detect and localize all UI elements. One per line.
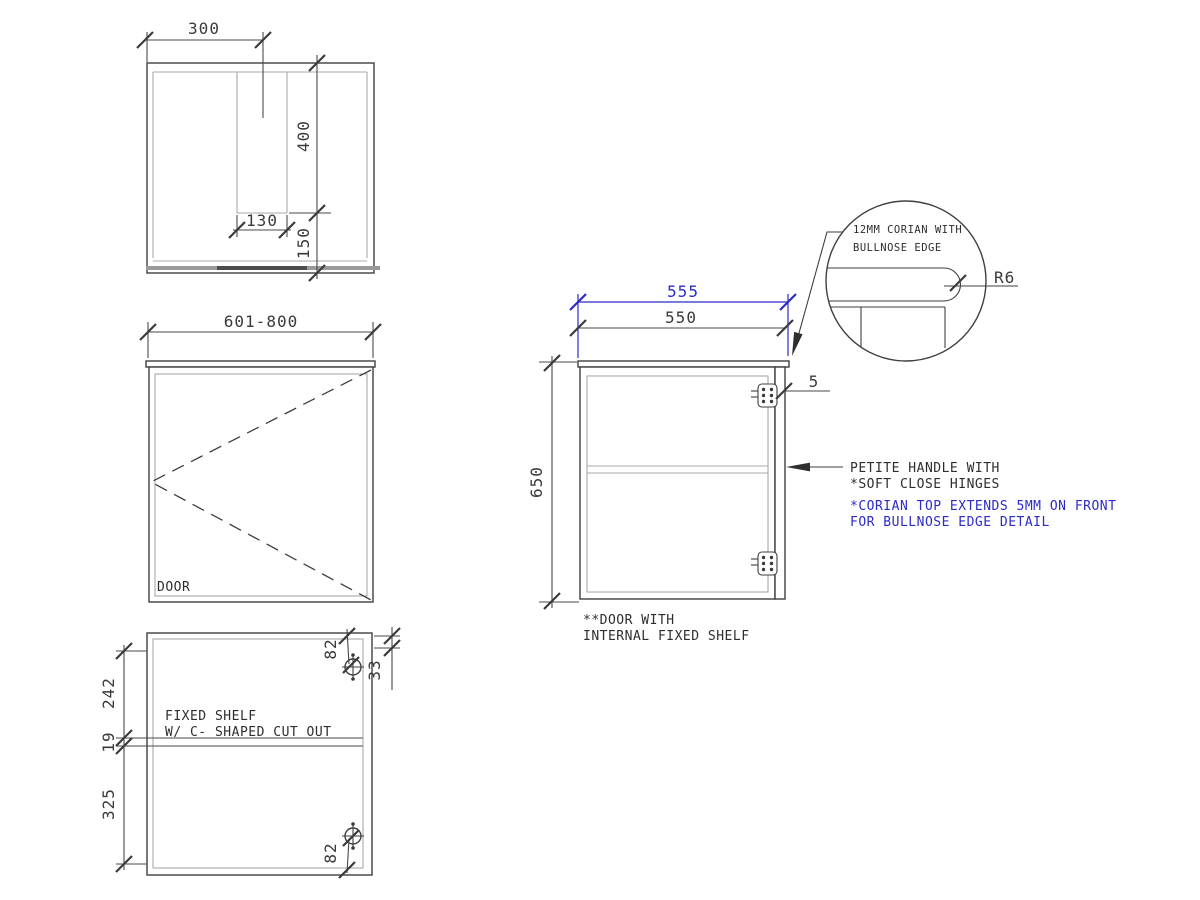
dim-650-label: 650 xyxy=(527,466,546,498)
door-label: DOOR xyxy=(157,580,190,595)
handle-note-line1: PETITE HANDLE WITH xyxy=(850,461,1000,476)
dim-555-label: 555 xyxy=(667,282,699,301)
dim-400-label: 400 xyxy=(294,120,313,152)
dim-550-label: 550 xyxy=(665,308,697,327)
side-note-line1: **DOOR WITH xyxy=(583,613,675,628)
fixed-shelf-note-line1: FIXED SHELF xyxy=(165,709,257,724)
dim-33-label: 33 xyxy=(365,659,384,680)
dim-5-label: 5 xyxy=(809,372,820,391)
fixed-shelf-note-line2: W/ C- SHAPED CUT OUT xyxy=(165,725,332,740)
detail-note-line2: BULLNOSE EDGE xyxy=(853,242,942,254)
dim-150-label: 150 xyxy=(294,227,313,259)
dim-82-top-label: 82 xyxy=(321,638,340,659)
side-note-line2: INTERNAL FIXED SHELF xyxy=(583,629,750,644)
corian-note-line1: *CORIAN TOP EXTENDS 5MM ON FRONT xyxy=(850,499,1116,514)
handle-note-line2: *SOFT CLOSE HINGES xyxy=(850,477,1000,492)
technical-drawing: 300 400 150 130 601-8 xyxy=(0,0,1200,900)
dim-325-label: 325 xyxy=(99,788,118,820)
front-corian-top xyxy=(146,361,375,367)
side-corian-top xyxy=(578,361,789,367)
dim-242-label: 242 xyxy=(99,677,118,709)
radius-r6-label: R6 xyxy=(994,268,1015,287)
dim-601-800-label: 601-800 xyxy=(224,312,298,331)
dim-82-bottom-label: 82 xyxy=(321,842,340,863)
cad-drawing-canvas: 300 400 150 130 601-8 xyxy=(0,0,1200,900)
corian-note-line2: FOR BULLNOSE EDGE DETAIL xyxy=(850,515,1050,530)
detail-note-line1: 12MM CORIAN WITH xyxy=(853,224,962,236)
side-carcass xyxy=(580,367,775,599)
dim-19-label: 19 xyxy=(99,731,118,752)
dim-130-label: 130 xyxy=(246,211,278,230)
dim-300-label: 300 xyxy=(188,19,220,38)
